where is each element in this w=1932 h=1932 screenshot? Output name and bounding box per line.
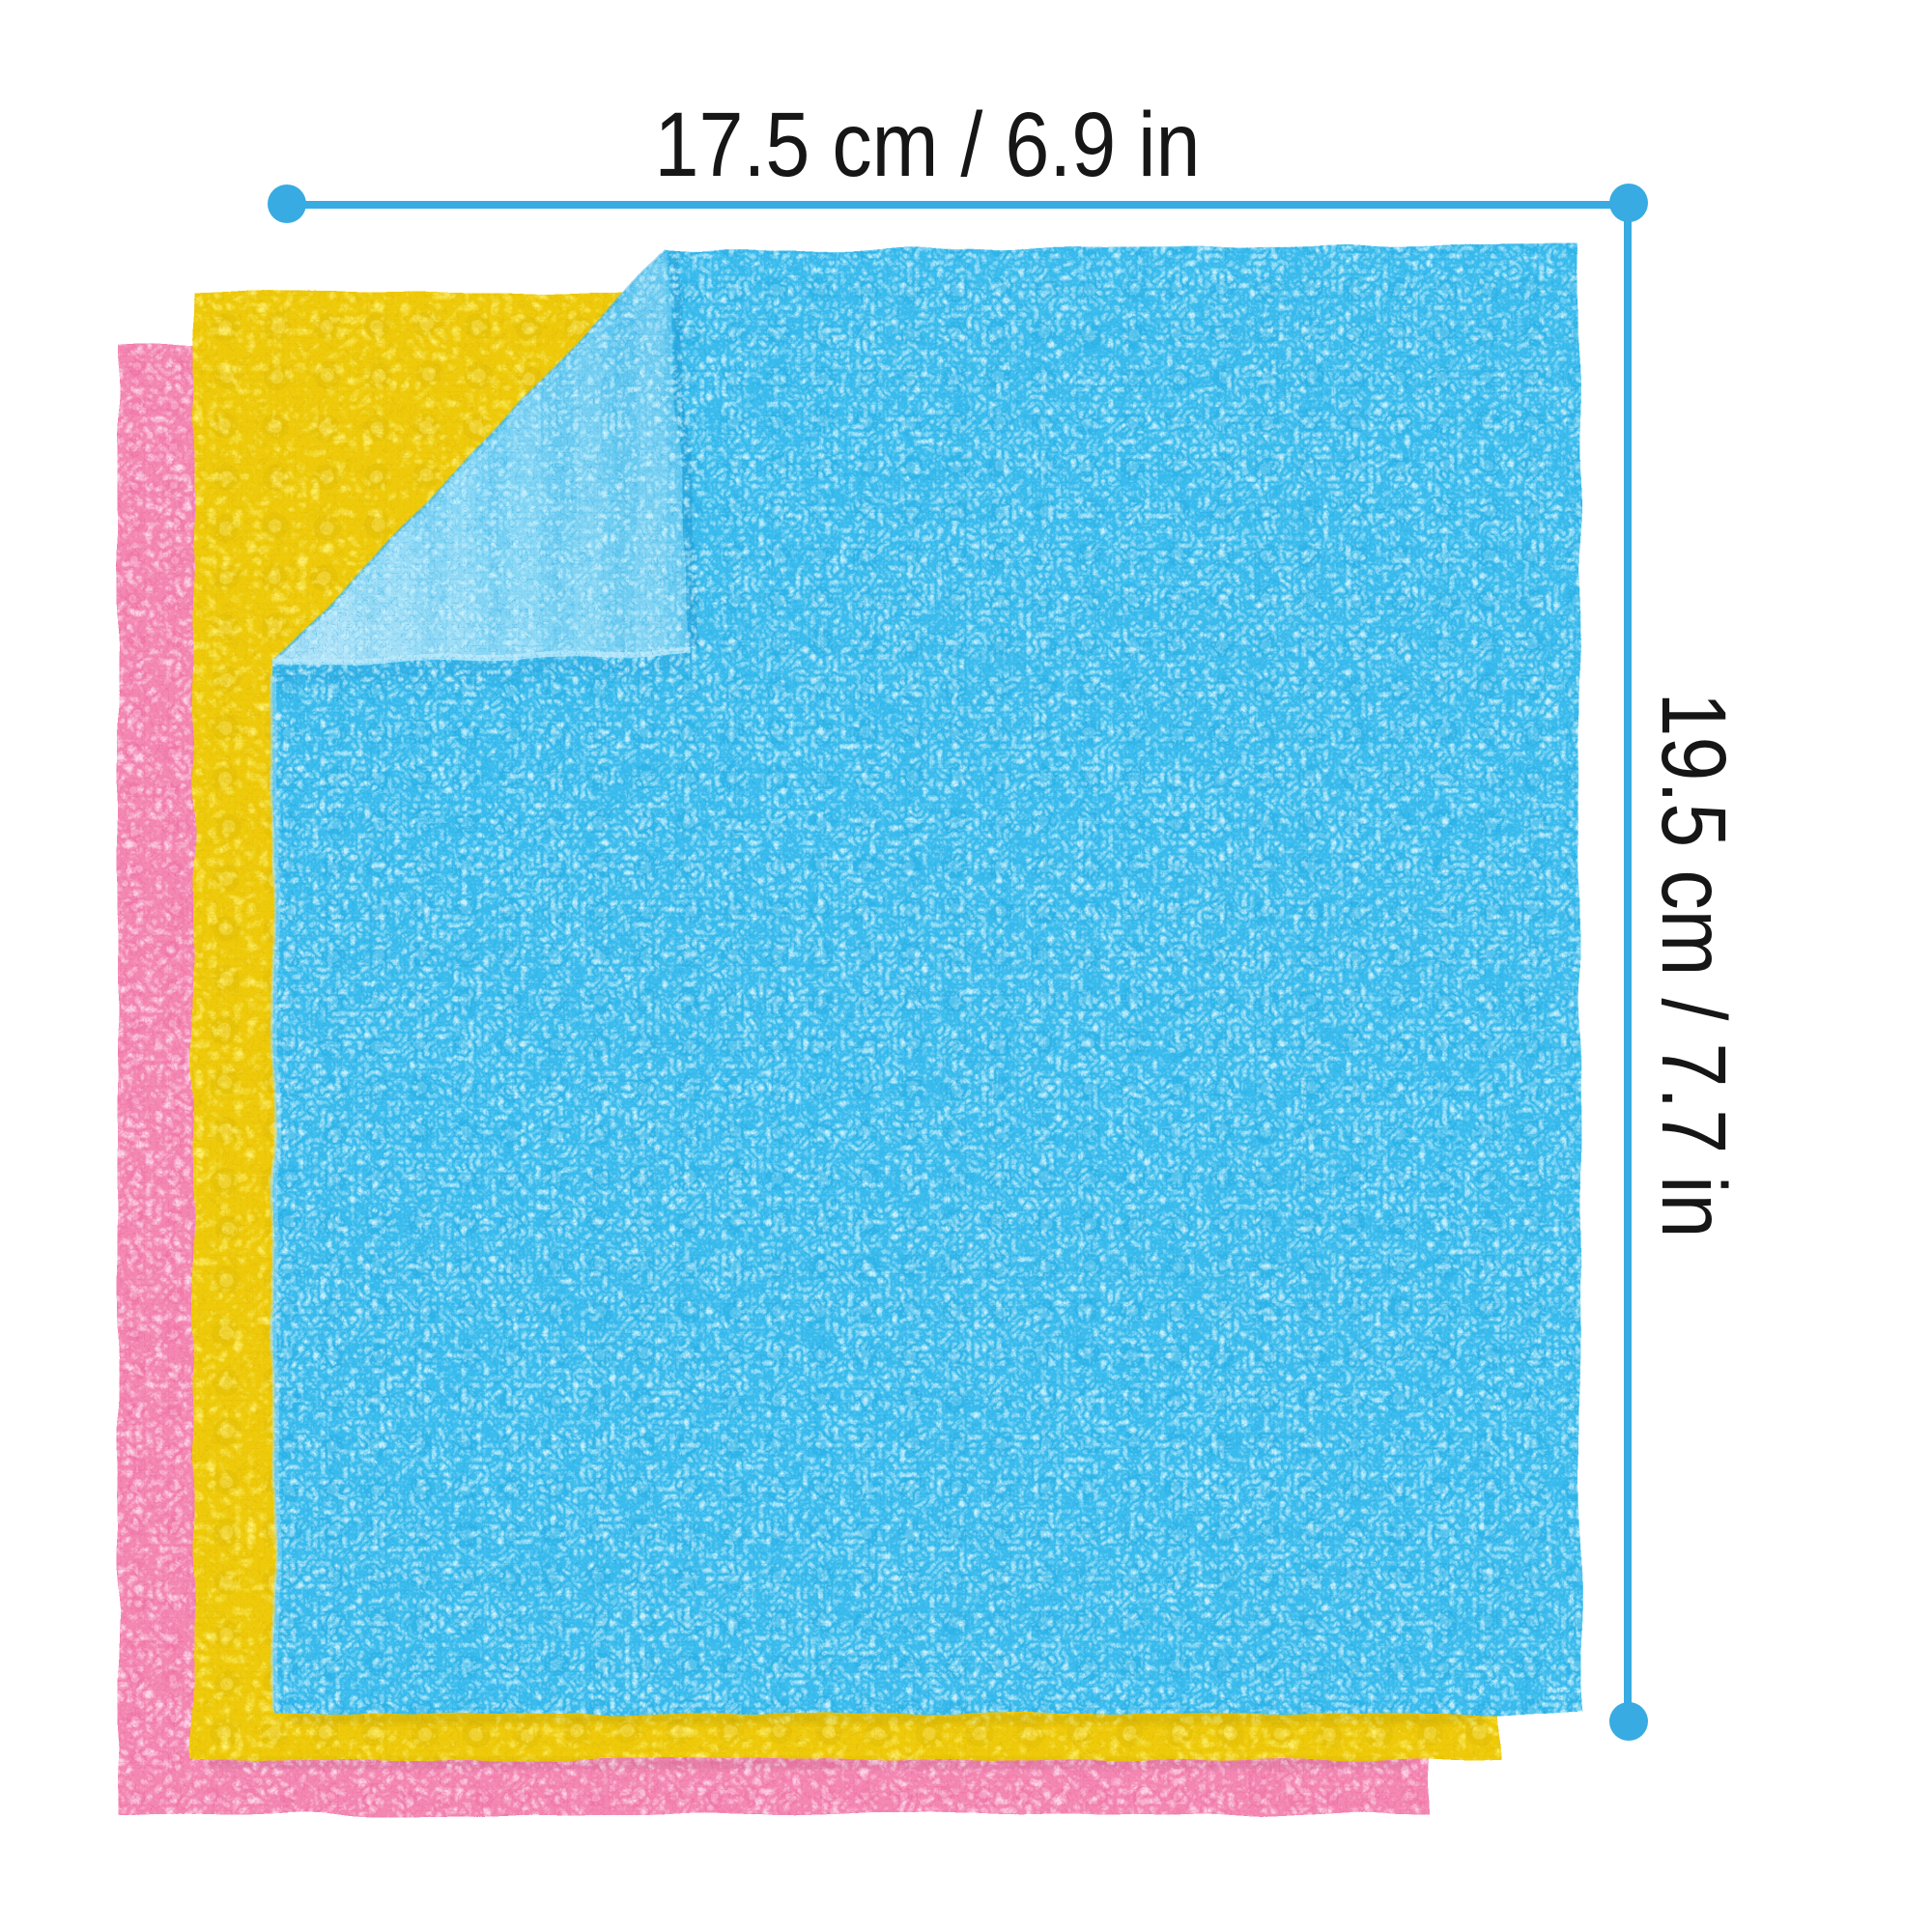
svg-text:19.5 cm / 7.7 in: 19.5 cm / 7.7 in — [1643, 693, 1747, 1238]
svg-text:17.5 cm / 6.9 in: 17.5 cm / 6.9 in — [655, 93, 1201, 196]
